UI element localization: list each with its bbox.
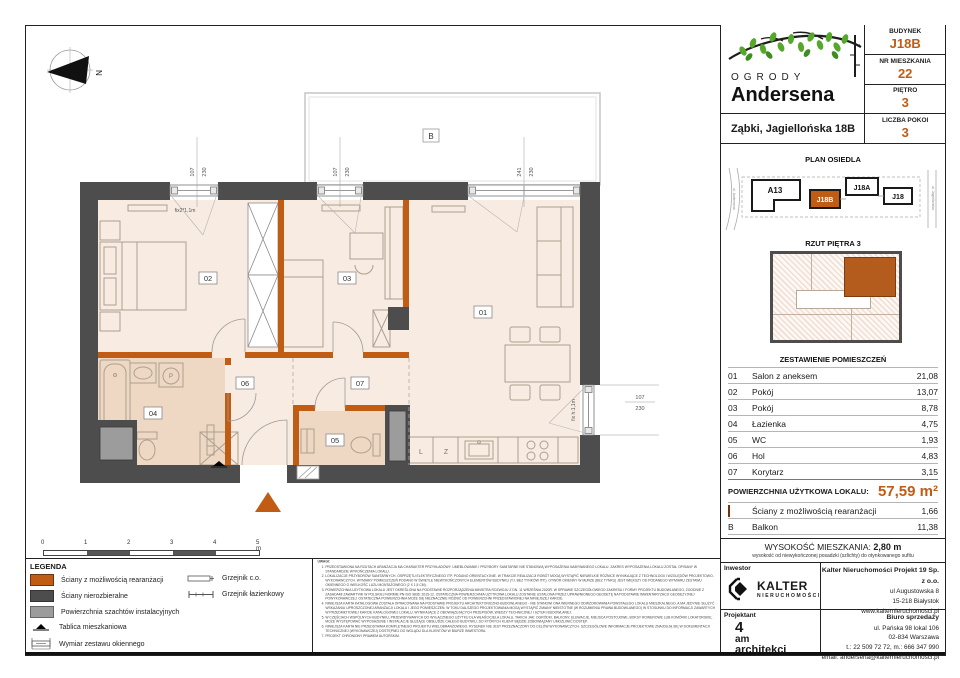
company-addr2: 15-218 Białystok xyxy=(821,597,939,607)
field-value: J18B xyxy=(890,36,921,51)
apartment-height: WYSOKOŚĆ MIESZKANIA: 2,80 m xyxy=(721,542,945,552)
note-item: NINIEJSZA KARTA KATALOGOWA ZOSTAŁA OPRAC… xyxy=(325,602,718,615)
legend-item: Wymiar zestawu okiennego xyxy=(30,637,145,651)
legend-item: Ściany nierozbieralne xyxy=(30,590,128,602)
table-row: 02Pokój13,07 xyxy=(728,383,938,399)
scale-bar: 0 1 2 3 4 5 m xyxy=(43,540,259,558)
legend-item: Ściany z możliwością rearanżacji xyxy=(30,574,163,586)
building-j18-label: J18 xyxy=(892,194,904,201)
note-item: W CZĘŚCIACH WSPÓLNYCH BUDYNKU, PRZEWIDYW… xyxy=(325,616,718,625)
notes-list: PRZEDSTAWIONA NA RZUTACH ARANŻACJA MA CH… xyxy=(325,566,718,639)
notes-zone: UWAGI: PRZEDSTAWIONA NA RZUTACH ARANŻACJ… xyxy=(312,558,718,653)
investor-cell: Inwestor KALTER NIERUCHOMOŚCI xyxy=(721,563,821,610)
dim-w4-height: 230 xyxy=(635,406,644,412)
room-tag-07: 07 xyxy=(356,379,364,388)
room-tag-01: 01 xyxy=(479,308,487,317)
dim-w4-width: 107 xyxy=(635,395,644,401)
field-label: BUDYNEK xyxy=(889,28,921,35)
designer-label: Projektant xyxy=(724,612,756,619)
office-addr2: 02-834 Warszawa xyxy=(822,633,939,643)
shaft-left xyxy=(100,427,133,460)
tablica-icon xyxy=(30,622,52,632)
dim-w2-height: 230 xyxy=(345,167,351,176)
building-j18a-label: J18A xyxy=(854,185,871,192)
field-pietro: PIĘTRO 3 xyxy=(865,85,945,115)
total-area-row: POWIERZCHNIA UŻYTKOWA LOKALU: 57,59 m² xyxy=(728,479,938,502)
entrance-marker xyxy=(255,492,281,512)
notes-title: UWAGI: xyxy=(317,560,330,563)
legend-item: Grzejnik c.o. xyxy=(187,574,261,583)
field-nr-mieszkania: NR MIESZKANIA 22 xyxy=(865,55,945,85)
table-row: 05WC1,93 xyxy=(728,431,938,447)
dim-w1-height: 230 xyxy=(202,167,208,176)
note-item: PRZEDSTAWIONA NA RZUTACH ARANŻACJA MA CH… xyxy=(325,566,718,575)
thumb-highlighted-apartment xyxy=(844,257,896,298)
dim-w2-width: 107 xyxy=(333,167,339,176)
office-addr1: ul. Pańska 98 lokal 106 xyxy=(822,624,939,634)
note-item: LOKALIZACJE PRZYBORÓW SANITARNYCH, OSPRZ… xyxy=(325,575,718,588)
total-area-label: POWIERZCHNIA UŻYTKOWA LOKALU: xyxy=(728,487,878,496)
investor-label: Inwestor xyxy=(724,565,751,572)
legend-item: Grzejnik łazienkowy xyxy=(187,590,284,599)
radiator-co-icon xyxy=(187,574,215,583)
room-tag-02: 02 xyxy=(204,274,212,283)
note-item: PROJEKT CHRONIONY PRAWEM AUTORSKIM. xyxy=(325,635,718,639)
site-plan-title: PLAN OSIEDLA xyxy=(721,155,945,164)
table-row: 07Korytarz3,15 xyxy=(728,463,938,479)
rearrangeable-wall-swatch xyxy=(30,574,54,586)
floor-plan: N B xyxy=(25,25,722,538)
floor-thumbnail xyxy=(770,251,902,343)
room-tag-05: 05 xyxy=(331,436,339,445)
catalog-sheet: N B xyxy=(0,0,960,678)
field-budynek: BUDYNEK J18B xyxy=(865,25,945,55)
legend-item: Tablica mieszkaniowa xyxy=(30,622,127,632)
threshold-hatch xyxy=(297,466,319,479)
logo-line1: OGRODY xyxy=(731,73,834,83)
field-liczba-pokoi: LICZBA POKOI 3 xyxy=(865,114,945,143)
investor-name: KALTER xyxy=(757,580,821,592)
compass-icon: N xyxy=(47,47,103,93)
logo-line2: Andersena xyxy=(731,85,834,105)
legend-title: LEGENDA xyxy=(30,562,67,571)
legend-zone: 0 1 2 3 4 5 m LEGENDA Ściany z możliwośc… xyxy=(25,538,312,652)
street-right-label: ul. Jagiellońska xyxy=(931,186,935,210)
fix-label-right: fix h:1,1m xyxy=(571,399,577,421)
rooms-table: 01Salon z aneksem21,08 02Pokój13,07 03Po… xyxy=(728,367,938,535)
total-area-value: 57,59 m² xyxy=(878,483,938,500)
field-value: 22 xyxy=(898,66,912,81)
field-value: 3 xyxy=(902,95,909,110)
building-j18b-label: J18B xyxy=(817,197,834,204)
publisher-zone: WYSOKOŚĆ MIESZKANIA: 2,80 m wysokość od … xyxy=(720,538,945,654)
address: Ząbki, Jagiellońska 18B xyxy=(721,113,865,144)
shaft-swatch xyxy=(30,606,54,618)
note-item: NINIEJSZA KARTA NIE PRZEDSTAWIA KOMPLETN… xyxy=(325,625,718,634)
office-label: Biuro sprzedaży xyxy=(822,613,939,624)
table-row: 06Hol4,83 xyxy=(728,447,938,463)
field-label: NR MIESZKANIA xyxy=(879,58,931,65)
fridge-label: L xyxy=(419,449,423,456)
header: OGRODY Andersena Ząbki, Jagiellońska 18B… xyxy=(721,25,945,144)
rooms-table-title: ZESTAWIENIE POMIESZCZEŃ xyxy=(721,355,945,364)
north-label: N xyxy=(94,70,103,76)
note-item: POWIERZCHNIA UŻYTKOWA LOKALU JEST OKREŚL… xyxy=(325,589,718,602)
room-tag-06: 06 xyxy=(241,379,249,388)
wardrobe xyxy=(248,203,278,347)
investor-sub: NIERUCHOMOŚCI xyxy=(757,593,821,599)
legend-item: Powierzchnia szachtów instalacyjnych xyxy=(30,606,179,618)
table-row: 04Łazienka4,75 xyxy=(728,415,938,431)
field-label: LICZBA POKOI xyxy=(882,117,928,124)
fix-label-top: fix2*1,1m xyxy=(175,208,196,214)
room-tag-03: 03 xyxy=(343,274,351,283)
structural-wall-swatch xyxy=(30,590,54,602)
shaft-right xyxy=(389,411,406,461)
balcony-label: B xyxy=(428,132,433,141)
apartment-height-note: wysokość od niewykończonej posadzki (szl… xyxy=(721,553,945,559)
4am-architekci-logo: 4 am architekci xyxy=(735,621,786,655)
kalter-logo-icon xyxy=(727,576,753,602)
company-cell: Kalter Nieruchomości Projekt 19 Sp. z o.… xyxy=(821,563,945,610)
dim-w3-width: 241 xyxy=(517,167,523,176)
dishwasher-label: Z xyxy=(444,449,449,456)
floor-thumb-title: RZUT PIĘTRA 3 xyxy=(721,239,945,248)
orange-wall-swatch xyxy=(728,505,730,517)
field-value: 3 xyxy=(902,125,909,140)
building-a13 xyxy=(752,180,800,211)
field-label: PIĘTRO xyxy=(893,87,917,94)
building-a13-label: A13 xyxy=(768,186,783,195)
table-row: 03Pokój8,78 xyxy=(728,399,938,415)
logo: OGRODY Andersena Ząbki, Jagiellońska 18B xyxy=(721,25,864,143)
dim-w1-width: 107 xyxy=(190,167,196,176)
designer-cell: Projektant 4 am architekci xyxy=(721,610,821,654)
sales-office-cell: Biuro sprzedaży ul. Pańska 98 lokal 106 … xyxy=(821,610,945,654)
balcony-area-row: B Balkon11,38 xyxy=(728,518,938,535)
walls-area-row: Ściany z możliwością rearanżacji1,66 xyxy=(728,502,938,518)
company-addr1: ul Augustowska 8 xyxy=(821,587,939,597)
dim-w3-height: 230 xyxy=(529,167,535,176)
washer-label: P xyxy=(169,374,173,380)
street-left-label: ul. Andersena xyxy=(732,188,736,209)
table-row: 01Salon z aneksem21,08 xyxy=(728,367,938,383)
unit-fields: BUDYNEK J18B NR MIESZKANIA 22 PIĘTRO 3 L… xyxy=(864,25,945,143)
room-tag-04: 04 xyxy=(149,409,157,418)
radiator-bathroom-icon xyxy=(187,590,215,599)
sheet-bottom-rule xyxy=(25,652,945,655)
company-name: Kalter Nieruchomości Projekt 19 Sp. z o.… xyxy=(821,566,939,587)
sidebar: OGRODY Andersena Ząbki, Jagiellońska 18B… xyxy=(720,25,945,538)
site-plan-map: ul. Andersena ul. Jagiellońska A13 J18B … xyxy=(722,166,944,232)
window-dimension-icon xyxy=(30,637,52,651)
